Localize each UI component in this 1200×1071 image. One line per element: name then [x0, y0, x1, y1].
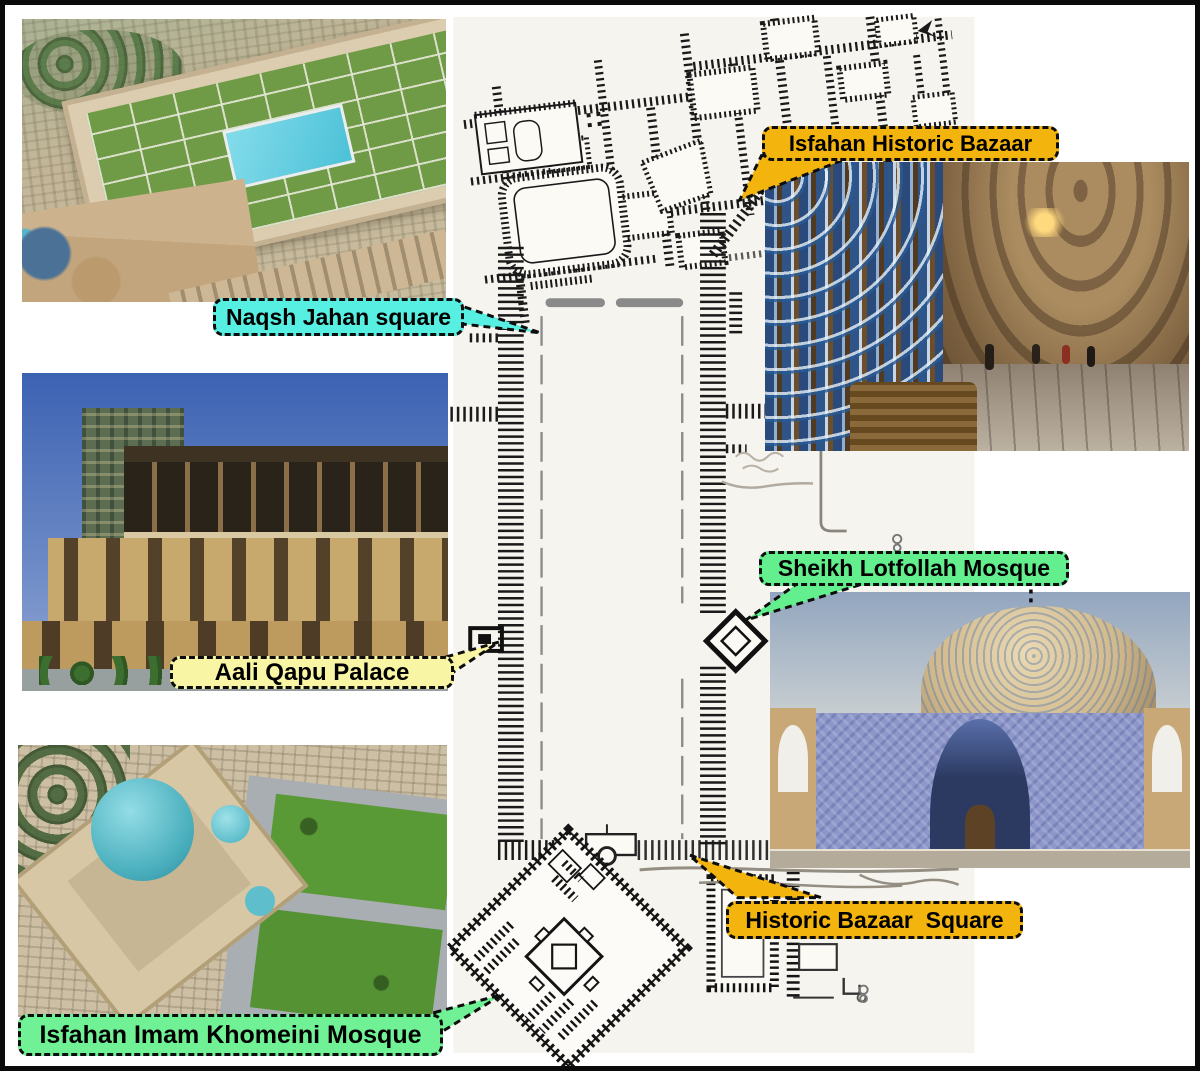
isfahan-naqsh-jahan-figure: Naqsh Jahan square Isfahan Historic Baza… — [0, 0, 1200, 1071]
arch-window — [778, 725, 808, 793]
naqsh-jahan-square-aerial-photo — [22, 19, 446, 302]
talar-roof — [124, 446, 448, 462]
mid-facade-arches — [48, 538, 448, 621]
person-silhouette — [985, 344, 994, 370]
label-aali-qapu-palace: Aali Qapu Palace — [170, 656, 454, 689]
brick-wing — [770, 708, 816, 849]
label-isfahan-imam-khomeini-mosque: Isfahan Imam Khomeini Mosque — [18, 1014, 443, 1056]
arch-window — [1152, 725, 1182, 793]
lamp-glow — [1019, 208, 1070, 237]
label-sheikh-lotfollah-mosque: Sheikh Lotfollah Mosque — [759, 551, 1069, 586]
label-isfahan-historic-bazaar: Isfahan Historic Bazaar — [762, 126, 1059, 161]
imam-mosque-aerial-photo — [18, 745, 447, 1017]
lotfollah-mosque-photo — [770, 592, 1190, 868]
basket-stall — [850, 382, 977, 451]
stone-platform — [770, 851, 1190, 868]
turquoise-dome-large — [91, 778, 194, 881]
label-naqsh-jahan-square: Naqsh Jahan square — [213, 298, 464, 336]
aali-qapu-palace-photo — [22, 373, 448, 691]
columned-veranda — [124, 462, 448, 535]
turquoise-dome-small — [211, 805, 250, 843]
portal-door — [965, 805, 995, 849]
person-silhouette — [1087, 346, 1095, 367]
person-silhouette — [1062, 345, 1070, 364]
bazaar-interior-photo — [765, 162, 1189, 451]
lawn — [249, 907, 442, 1017]
label-historic-bazaar-square: Historic Bazaar Square — [726, 901, 1023, 939]
person-silhouette — [1032, 344, 1040, 364]
brick-wing — [1144, 708, 1190, 849]
